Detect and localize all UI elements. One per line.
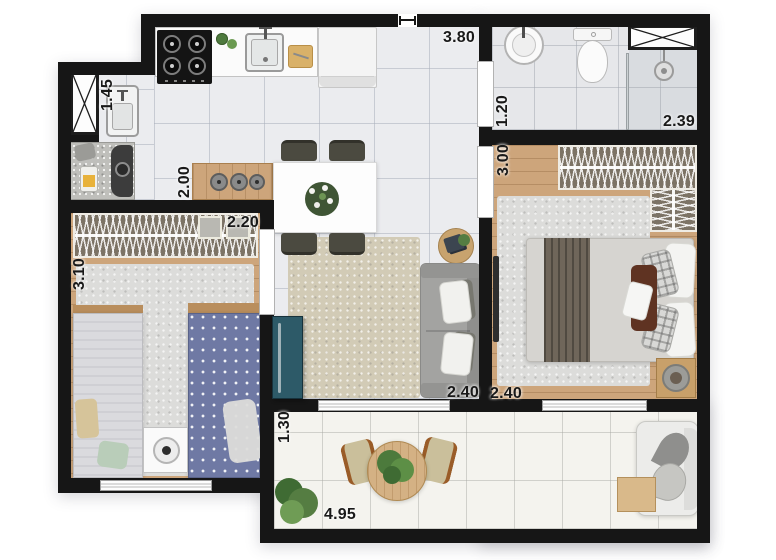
washing-machine-icon <box>111 145 133 197</box>
stove-icon <box>157 30 212 84</box>
floor-plan: 3.80 1.20 2.39 3.00 1.45 2.00 2.20 3.10 … <box>0 0 776 560</box>
decor-tray-icon <box>662 364 690 392</box>
dim-kitchen-counter: 2.00 <box>176 166 194 198</box>
wall-left <box>58 62 71 493</box>
dim-bedroom2-depth: 3.10 <box>71 258 89 290</box>
bedroom1-door-opening <box>477 146 494 218</box>
refrigerator-icon <box>318 27 377 88</box>
dining-chair-icon <box>281 140 317 161</box>
dim-balcony-width: 4.95 <box>324 506 356 524</box>
dining-chair-icon <box>329 233 365 255</box>
bedroom1-wardrobe-side <box>650 188 697 232</box>
bar-stool-icon <box>210 173 228 191</box>
dining-chair-icon <box>329 140 365 161</box>
tv-panel <box>493 256 499 342</box>
kitchen-sink-icon <box>245 33 284 72</box>
cutting-board-icon <box>288 45 313 68</box>
shower-head-icon <box>654 61 674 81</box>
bedroom1-wardrobe <box>558 145 697 190</box>
wall-top-right <box>417 14 710 27</box>
sofa-pillow-icon <box>439 279 473 324</box>
balcony-side-table <box>617 477 656 512</box>
dim-bedroom2-wardrobe: 2.20 <box>227 214 259 232</box>
wall-gap-ticks <box>398 14 417 27</box>
bathroom-door-opening <box>477 61 494 127</box>
detergent-bottle-icon <box>80 166 98 192</box>
wall-right <box>697 14 710 543</box>
shower-partition <box>626 53 629 130</box>
counter-plant-icon <box>227 39 237 49</box>
dining-chair-icon <box>281 233 317 255</box>
toilet-bowl-icon <box>577 40 608 83</box>
wardrobe-box-icon <box>198 216 222 239</box>
blanket-icon <box>75 398 100 438</box>
table-centerpiece-icon <box>305 182 339 216</box>
wall-step-horizontal <box>58 62 155 75</box>
bar-stool-icon <box>230 173 248 191</box>
bathroom-shaft-box <box>628 25 697 50</box>
wall-laundry-stub <box>70 135 99 142</box>
bedroom2-door-opening <box>259 229 275 315</box>
bed-runner <box>544 238 590 362</box>
laundry-shaft-box <box>70 72 99 135</box>
sliding-door-living <box>318 400 450 411</box>
window-bedroom2 <box>100 480 212 491</box>
dim-kitchen-width: 3.80 <box>443 29 475 47</box>
dim-living-width: 2.40 <box>447 384 479 402</box>
small-plant-icon <box>458 234 470 246</box>
wall-bedroom2-top <box>71 200 274 213</box>
dim-shower-width: 2.39 <box>663 113 695 131</box>
single-bed-headboard <box>188 303 260 313</box>
dim-balcony-depth: 1.30 <box>276 411 294 443</box>
dim-bedroom1-width: 2.40 <box>490 385 522 403</box>
nightstand <box>143 427 188 473</box>
sofa-pillow-icon <box>440 332 474 377</box>
wall-bathroom-bottom <box>479 130 710 145</box>
table-plant-icon <box>383 466 401 484</box>
potted-plant-icon <box>280 500 304 524</box>
dim-laundry-depth: 1.45 <box>99 79 117 111</box>
wall-balcony-bottom <box>260 529 710 543</box>
dim-bedroom1-depth: 3.00 <box>495 144 513 176</box>
living-rug <box>288 237 420 398</box>
dim-bathroom-depth: 1.20 <box>494 95 512 127</box>
window-bedroom1 <box>542 400 647 411</box>
wall-top-kitchen <box>141 14 398 27</box>
pillow-green-icon <box>96 440 129 470</box>
entry-door-leaf <box>272 316 303 399</box>
bar-stool-icon <box>249 174 265 190</box>
